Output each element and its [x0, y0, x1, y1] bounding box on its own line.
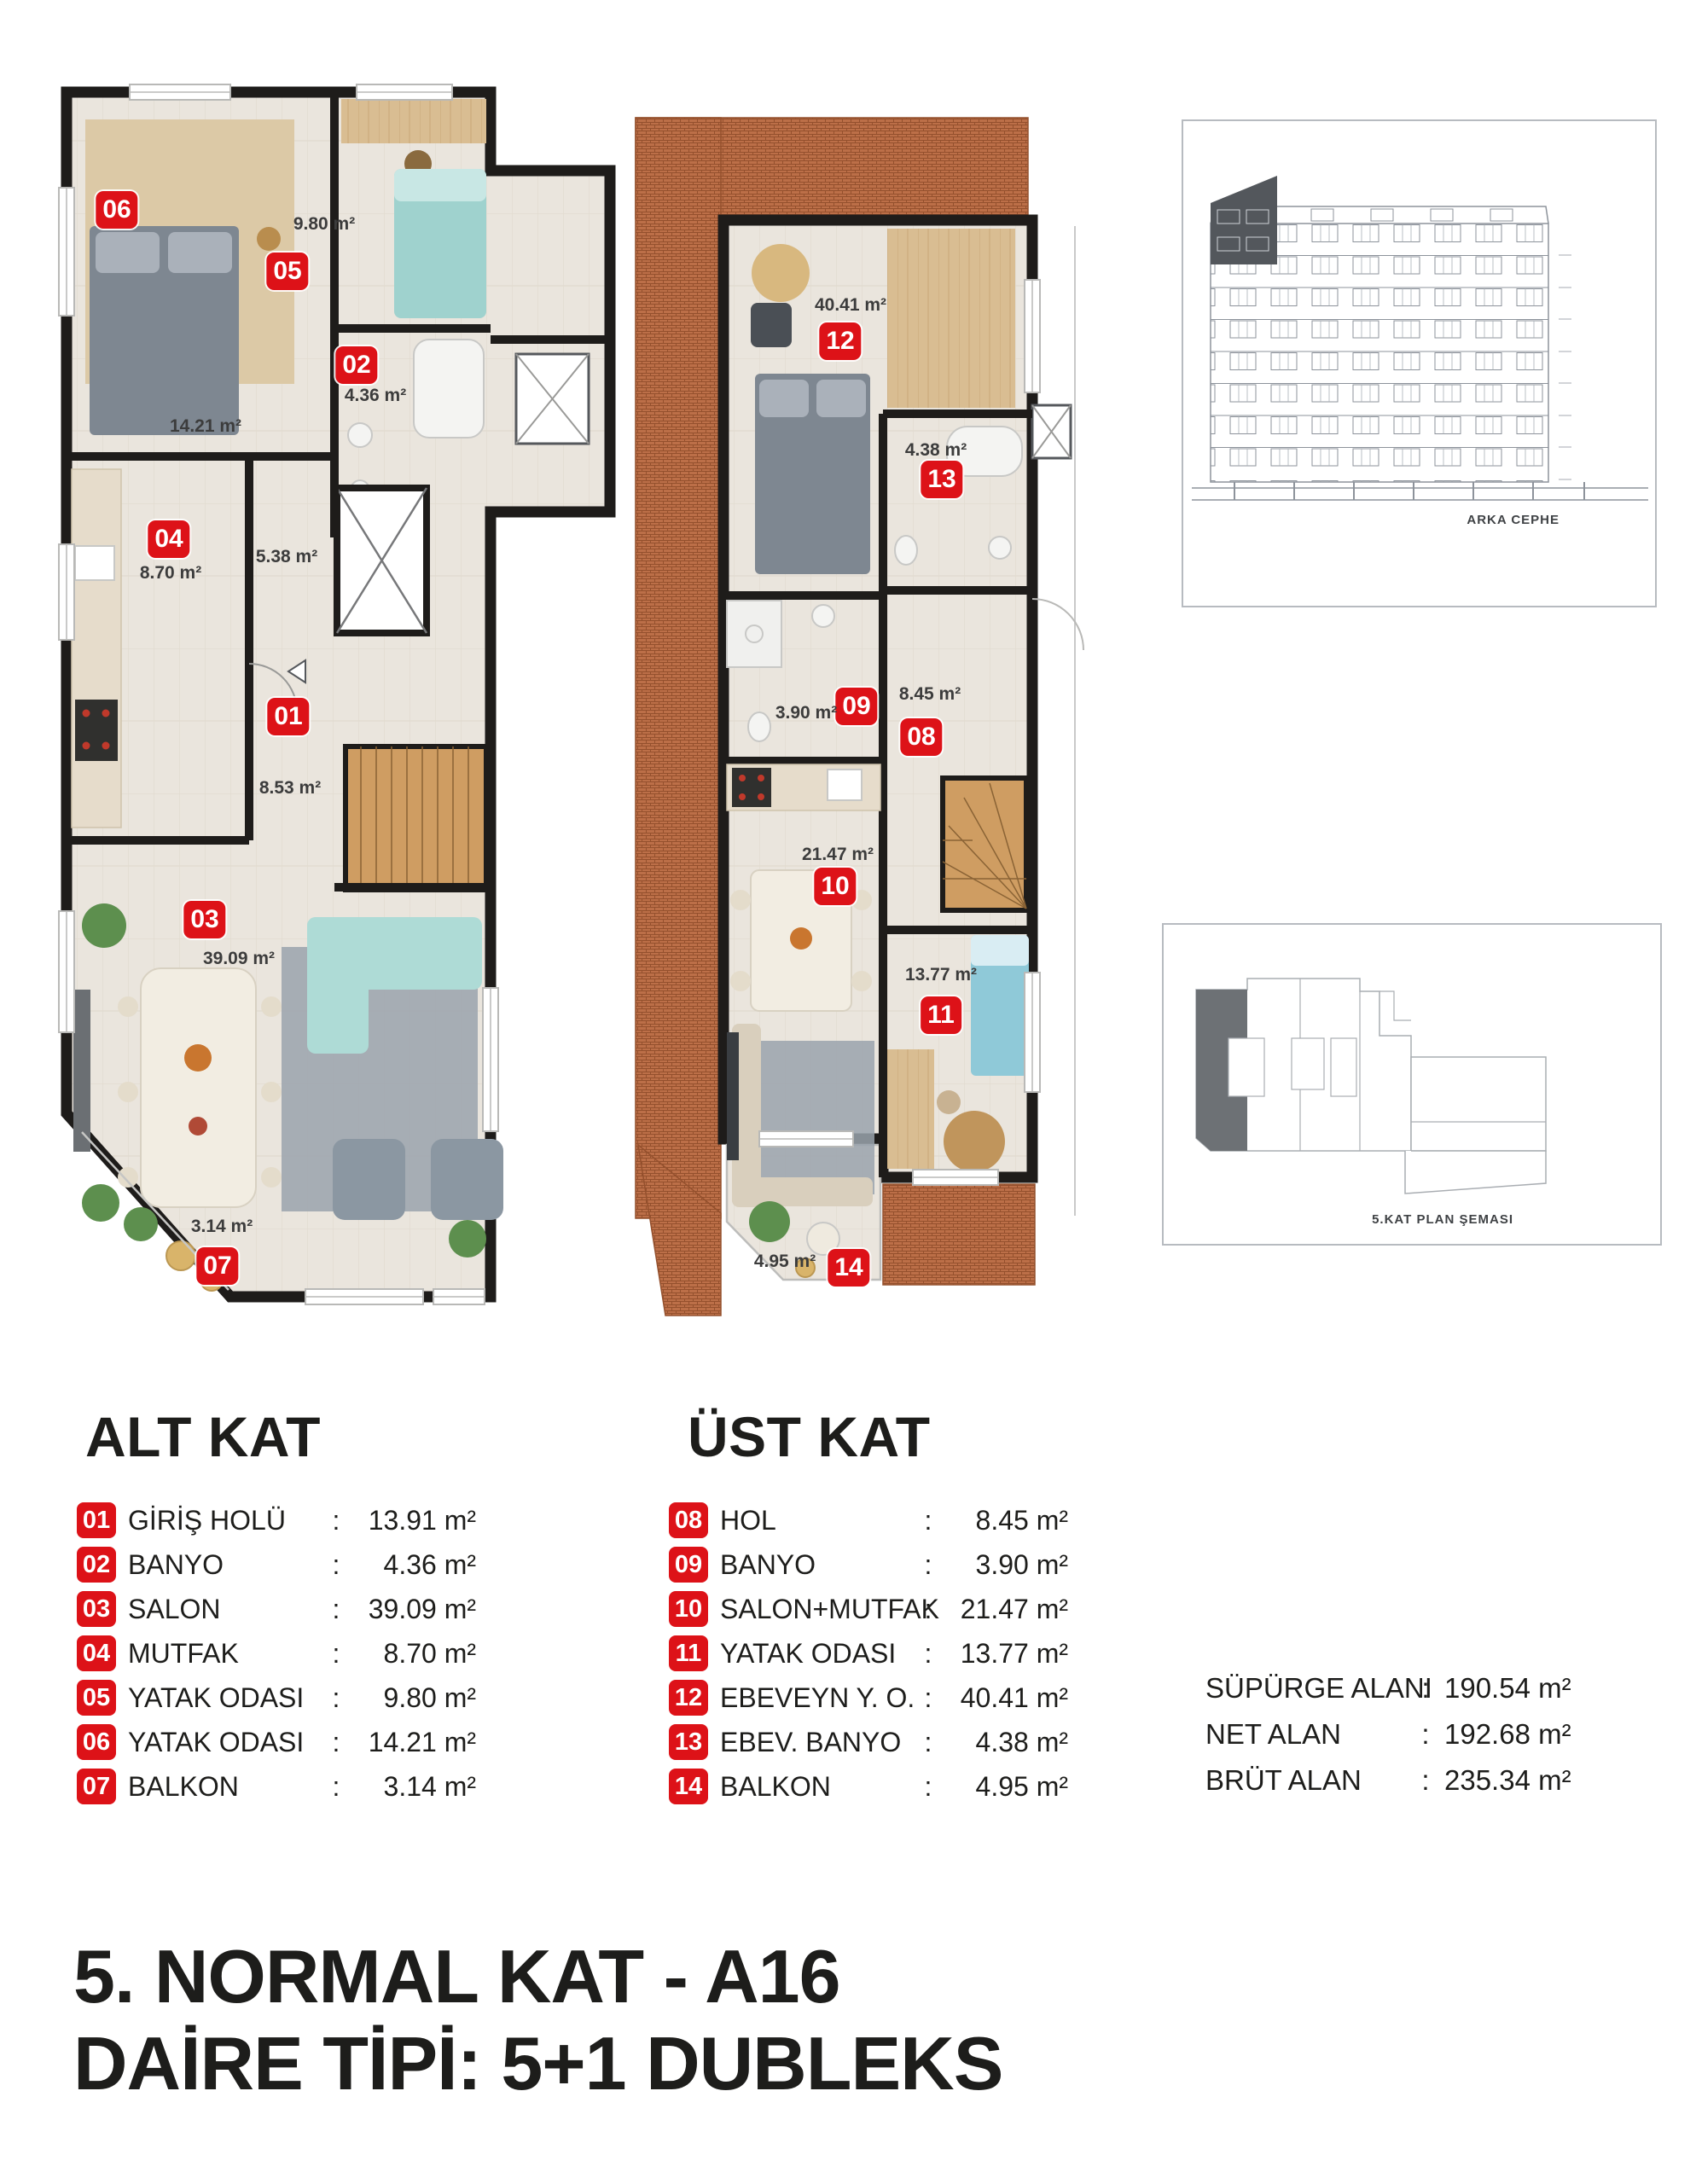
- room-number-badge: 11: [669, 1635, 708, 1671]
- legend-row: 08 HOL : 8.45 m²: [669, 1501, 1068, 1539]
- room-badge-02: 02: [335, 346, 377, 384]
- room-area-value: 9.80 m²: [343, 1682, 476, 1714]
- keyplan-drawing: [1164, 925, 1660, 1244]
- legend-row: 03 SALON : 39.09 m²: [77, 1590, 476, 1628]
- room-badge-12: 12: [819, 322, 861, 360]
- room-label: YATAK ODASI: [118, 1727, 329, 1758]
- room-label: BANYO: [118, 1549, 329, 1581]
- area-summary: SÜPÜRGE ALANI : 190.54 m² NET ALAN : 192…: [1205, 1670, 1615, 1809]
- legend-row: 10 SALON+MUTFAK : 21.47 m²: [669, 1590, 1068, 1628]
- service-shaft: [516, 354, 589, 444]
- room-area-value: 39.09 m²: [343, 1594, 476, 1625]
- area-label: 9.80 m²: [293, 214, 355, 235]
- room-label: YATAK ODASI: [118, 1682, 329, 1714]
- title-line-1: 5. NORMAL KAT - A16: [73, 1933, 1002, 2020]
- room-label: GİRİŞ HOLÜ: [118, 1505, 329, 1536]
- area-label: 4.38 m²: [905, 440, 967, 461]
- room-label: YATAK ODASI: [710, 1638, 921, 1670]
- room-label: SALON+MUTFAK: [710, 1594, 921, 1625]
- room-badge-09: 09: [835, 688, 877, 725]
- building-elevation-drawing: [1183, 121, 1655, 606]
- area-label: 13.77 m²: [905, 965, 977, 985]
- legend-row: 12 EBEVEYN Y. O. : 40.41 m²: [669, 1679, 1068, 1716]
- room-number-badge: 07: [77, 1769, 116, 1804]
- room-area-value: 40.41 m²: [935, 1682, 1068, 1714]
- summary-value: 192.68 m²: [1432, 1718, 1615, 1751]
- room-area-value: 14.21 m²: [343, 1727, 476, 1758]
- room-badge-03: 03: [183, 901, 225, 938]
- kitchen-04-counter: [72, 469, 121, 828]
- area-label: 8.45 m²: [899, 684, 961, 705]
- room-badge-13: 13: [921, 461, 962, 498]
- service-shaft: [1032, 405, 1071, 458]
- room-number-badge: 02: [77, 1547, 116, 1583]
- title-line-2: DAİRE TİPİ: 5+1 DUBLEKS: [73, 2020, 1002, 2107]
- staircase: [943, 778, 1026, 910]
- room-badge-01: 01: [267, 698, 309, 735]
- room-badge-10: 10: [814, 868, 856, 905]
- room-number-badge: 06: [77, 1724, 116, 1760]
- keyplan-caption: 5.KAT PLAN ŞEMASI: [1372, 1212, 1513, 1227]
- summary-label: SÜPÜRGE ALANI: [1205, 1672, 1419, 1705]
- room-area-value: 4.36 m²: [343, 1549, 476, 1581]
- room-number-badge: 04: [77, 1635, 116, 1671]
- floor-plan-upper: 12 13 09 08 10 11 14 40.41 m² 4.38 m² 3.…: [631, 68, 1177, 1348]
- summary-value: 190.54 m²: [1432, 1672, 1615, 1705]
- legend-row: 09 BANYO : 3.90 m²: [669, 1546, 1068, 1583]
- legend-row: 11 YATAK ODASI : 13.77 m²: [669, 1635, 1068, 1672]
- room-number-badge: 13: [669, 1724, 708, 1760]
- room-area-value: 13.77 m²: [935, 1638, 1068, 1670]
- room-label: EBEVEYN Y. O.: [710, 1682, 921, 1714]
- area-label: 40.41 m²: [815, 295, 886, 316]
- legend-row: 07 BALKON : 3.14 m²: [77, 1768, 476, 1805]
- floor-plan-upper-drawing: [631, 68, 1177, 1348]
- room-badge-11: 11: [921, 996, 961, 1034]
- room-label: BALKON: [710, 1771, 921, 1803]
- legend-row: 04 MUTFAK : 8.70 m²: [77, 1635, 476, 1672]
- legend-row: 02 BANYO : 4.36 m²: [77, 1546, 476, 1583]
- summary-label: NET ALAN: [1205, 1718, 1419, 1751]
- room-label: EBEV. BANYO: [710, 1727, 921, 1758]
- legend-upper: 08 HOL : 8.45 m² 09 BANYO : 3.90 m² 10 S…: [669, 1501, 1068, 1812]
- area-label: 39.09 m²: [203, 949, 275, 969]
- room-number-badge: 08: [669, 1502, 708, 1538]
- room-badge-04: 04: [148, 520, 189, 558]
- room-area-value: 8.70 m²: [343, 1638, 476, 1670]
- legend-row: 13 EBEV. BANYO : 4.38 m²: [669, 1723, 1068, 1761]
- keyplan-panel: 5.KAT PLAN ŞEMASI: [1162, 923, 1662, 1246]
- room-label: HOL: [710, 1505, 921, 1536]
- room-number-badge: 10: [669, 1591, 708, 1627]
- room-number-badge: 03: [77, 1591, 116, 1627]
- elevation-caption: ARKA CEPHE: [1467, 513, 1560, 527]
- area-label: 8.70 m²: [140, 563, 201, 584]
- room-area-value: 3.14 m²: [343, 1771, 476, 1803]
- room-number-badge: 09: [669, 1547, 708, 1583]
- room-area-value: 3.90 m²: [935, 1549, 1068, 1581]
- room-badge-06: 06: [96, 191, 137, 229]
- legend-row: 05 YATAK ODASI : 9.80 m²: [77, 1679, 476, 1716]
- room-badge-05: 05: [266, 253, 308, 290]
- summary-row: SÜPÜRGE ALANI : 190.54 m²: [1205, 1670, 1615, 1706]
- highlighted-unit: [1211, 176, 1277, 264]
- legend-row: 01 GİRİŞ HOLÜ : 13.91 m²: [77, 1501, 476, 1539]
- legend-row: 06 YATAK ODASI : 14.21 m²: [77, 1723, 476, 1761]
- room-badge-07: 07: [196, 1247, 238, 1285]
- summary-label: BRÜT ALAN: [1205, 1764, 1419, 1797]
- legend-lower: 01 GİRİŞ HOLÜ : 13.91 m² 02 BANYO : 4.36…: [77, 1501, 476, 1812]
- area-label: 5.38 m²: [256, 547, 317, 567]
- area-label: 3.90 m²: [775, 703, 837, 723]
- area-label: 4.36 m²: [345, 386, 406, 406]
- floor-plan-lower-drawing: [51, 68, 631, 1348]
- area-label: 14.21 m²: [170, 416, 241, 437]
- summary-row: BRÜT ALAN : 235.34 m²: [1205, 1763, 1615, 1798]
- area-label: 8.53 m²: [259, 778, 321, 799]
- room-label: MUTFAK: [118, 1638, 329, 1670]
- summary-row: NET ALAN : 192.68 m²: [1205, 1716, 1615, 1752]
- room-number-badge: 14: [669, 1769, 708, 1804]
- summary-value: 235.34 m²: [1432, 1764, 1615, 1797]
- area-label: 4.95 m²: [754, 1252, 816, 1272]
- room-area-value: 4.95 m²: [935, 1771, 1068, 1803]
- area-label: 3.14 m²: [191, 1217, 253, 1237]
- room-label: BALKON: [118, 1771, 329, 1803]
- room-badge-08: 08: [900, 718, 942, 756]
- room-label: BANYO: [710, 1549, 921, 1581]
- room-number-badge: 05: [77, 1680, 116, 1716]
- upper-floor-heading: ÜST KAT: [688, 1404, 931, 1469]
- room-number-badge: 12: [669, 1680, 708, 1716]
- elevation-panel: ARKA CEPHE: [1182, 119, 1657, 607]
- sheet-title: 5. NORMAL KAT - A16 DAİRE TİPİ: 5+1 DUBL…: [73, 1933, 1002, 2107]
- floorplan-sheet: 06 05 02 04 01 03 07 9.80 m² 4.36 m² 14.…: [0, 0, 1696, 2184]
- staircase: [346, 746, 486, 890]
- room-area-value: 4.38 m²: [935, 1727, 1068, 1758]
- room-area-value: 13.91 m²: [343, 1505, 476, 1536]
- room-badge-14: 14: [828, 1249, 869, 1287]
- room-number-badge: 01: [77, 1502, 116, 1538]
- lower-floor-heading: ALT KAT: [85, 1404, 321, 1469]
- area-label: 21.47 m²: [802, 845, 874, 865]
- room-area-value: 8.45 m²: [935, 1505, 1068, 1536]
- room-label: SALON: [118, 1594, 329, 1625]
- legend-row: 14 BALKON : 4.95 m²: [669, 1768, 1068, 1805]
- room-area-value: 21.47 m²: [935, 1594, 1068, 1625]
- elevator-shaft: [337, 488, 427, 633]
- floor-plan-lower: 06 05 02 04 01 03 07 9.80 m² 4.36 m² 14.…: [51, 68, 631, 1348]
